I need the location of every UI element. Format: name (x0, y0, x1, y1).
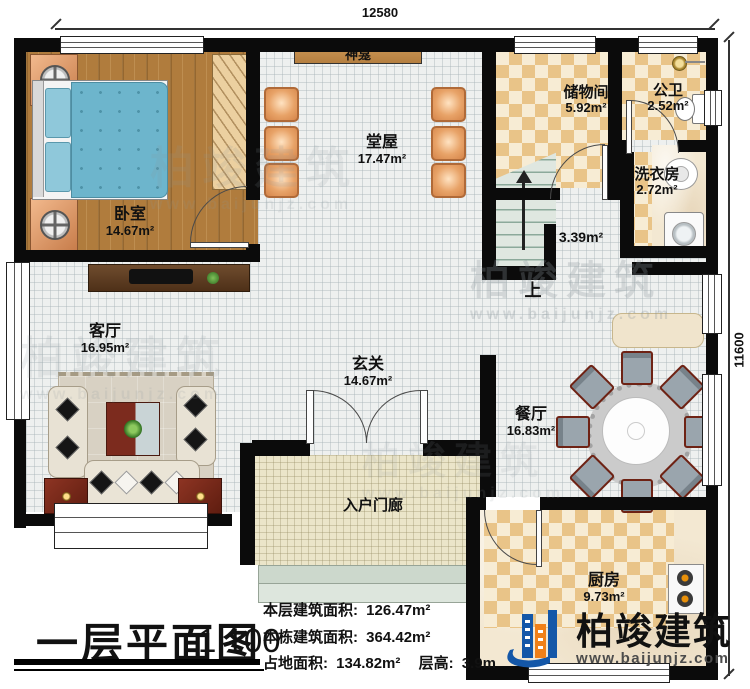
bed-quilt (71, 82, 168, 198)
wall (246, 38, 260, 200)
door-leaf (602, 145, 608, 200)
wall (678, 140, 706, 152)
sofa-cushion (55, 397, 79, 421)
dining-chair (621, 351, 653, 385)
wall (480, 355, 496, 497)
sofa-cushion (114, 470, 138, 494)
hall-label: 堂屋 17.47m² (358, 134, 406, 167)
door-leaf (190, 242, 249, 248)
entry-door-leaf (420, 390, 428, 444)
stat-building-area: 本栋建筑面积: 364.42m² (263, 626, 430, 647)
plant-icon (207, 272, 219, 284)
storage-label: 储物间 5.92m² (563, 84, 608, 116)
laundry-label: 洗衣房 2.72m² (634, 166, 679, 198)
dining-table-center (627, 422, 645, 440)
sofa-cushion (183, 393, 207, 417)
washer-door-icon (672, 222, 696, 246)
wall (482, 266, 556, 280)
stair-up-label: 上 (525, 281, 542, 301)
bed (32, 80, 168, 200)
sideboard (612, 313, 704, 348)
burner-icon (677, 570, 693, 586)
dining-chair (556, 416, 590, 448)
lamp-icon (40, 210, 70, 240)
title-rule-thick (14, 659, 260, 665)
entry-door-leaf (306, 390, 314, 444)
wall (540, 497, 706, 510)
wall (14, 250, 258, 262)
hall-chair (264, 126, 299, 161)
window (638, 36, 698, 54)
pillow (45, 142, 71, 192)
sofa-left (48, 386, 88, 478)
right-dimension-line (728, 40, 730, 676)
window (6, 262, 30, 420)
door-leaf (536, 510, 542, 567)
window (704, 90, 722, 126)
top-dimension-line (55, 28, 715, 30)
window (702, 274, 722, 334)
sofa-cushion (55, 435, 79, 459)
brand-website: www.baijunjz.com (576, 650, 732, 667)
window (702, 374, 722, 486)
hall-chair (431, 126, 466, 161)
bed-headboard (33, 81, 44, 197)
stairwell-area-label: 3.39m² (559, 229, 603, 245)
stat-floor-area: 本层建筑面积: 126.47m² (263, 599, 430, 620)
hall-chair (264, 87, 299, 122)
title-rule-thin (14, 669, 264, 671)
wall (620, 246, 718, 258)
plant-icon (124, 420, 142, 438)
sofa-cushion (89, 470, 113, 494)
dining-label: 餐厅 16.83m² (507, 406, 555, 439)
nightstand (30, 198, 78, 252)
wall (482, 38, 496, 280)
tv-cabinet (88, 264, 250, 292)
right-dimension-value: 11600 (732, 332, 747, 367)
wall (632, 262, 706, 275)
shower-arm-icon (685, 61, 705, 63)
sofa-right (176, 386, 216, 466)
brand-text: 柏竣建筑 www.baijunjz.com (576, 613, 732, 667)
floor-plan-canvas: 神龛 (0, 0, 750, 689)
wall (252, 440, 310, 456)
bay-window (54, 503, 208, 549)
sofa-cushion (183, 427, 207, 451)
kitchen-label: 厨房 9.73m² (583, 572, 624, 605)
wc-label: 公卫 2.52m² (647, 82, 688, 114)
window (60, 36, 204, 54)
hall-chair (264, 163, 299, 198)
wall (240, 443, 255, 565)
wardrobe (212, 54, 250, 190)
stat-footprint-height: 占地面积: 134.82m² 层高: 3.9m (263, 652, 496, 673)
brand-logo-icon (500, 606, 568, 674)
hall-chair (431, 87, 466, 122)
sofa-cushion (139, 470, 163, 494)
shower-icon (672, 56, 687, 71)
brand-name: 柏竣建筑 (576, 613, 732, 650)
porch-label: 入户门廊 (343, 497, 403, 514)
hall-chair (431, 163, 466, 198)
foyer-label: 玄关 14.67m² (344, 356, 392, 389)
tv-icon (129, 269, 193, 284)
porch-step (258, 565, 468, 585)
coffee-table (106, 402, 160, 456)
stair-arrow-head (516, 162, 532, 183)
brand-logo: 柏竣建筑 www.baijunjz.com (500, 606, 732, 674)
door-leaf (626, 100, 632, 154)
wall (544, 224, 556, 268)
burner-icon (677, 591, 693, 607)
window (514, 36, 596, 54)
living-label: 客厅 16.95m² (81, 323, 129, 356)
wall (706, 38, 718, 680)
wall (480, 497, 486, 510)
wall (423, 440, 480, 456)
pillow (45, 88, 71, 138)
top-dimension-value: 12580 (362, 5, 398, 20)
bedroom-label: 卧室 14.67m² (106, 206, 154, 239)
wall (620, 152, 634, 258)
